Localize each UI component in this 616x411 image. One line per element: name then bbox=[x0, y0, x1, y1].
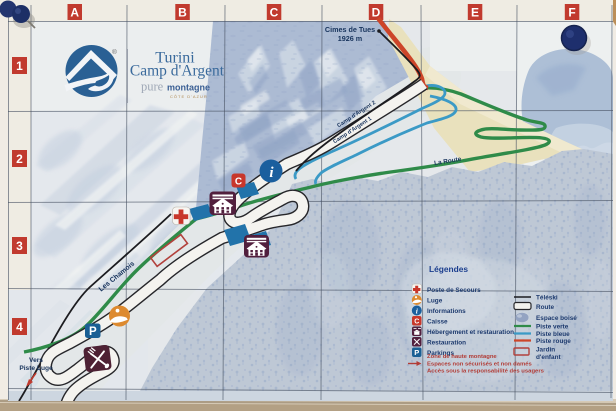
svg-text:pure: pure bbox=[141, 80, 164, 94]
svg-text:Luge: Luge bbox=[427, 298, 443, 305]
svg-text:d'enfant: d'enfant bbox=[536, 354, 561, 361]
svg-text:Camp d'Argent: Camp d'Argent bbox=[130, 63, 225, 80]
svg-text:montagne: montagne bbox=[167, 83, 210, 93]
svg-text:CÔTE D'AZUR: CÔTE D'AZUR bbox=[170, 94, 208, 99]
svg-text:E: E bbox=[471, 6, 479, 20]
svg-text:Cimes de Tues: Cimes de Tues bbox=[325, 25, 375, 34]
svg-text:4: 4 bbox=[16, 320, 23, 334]
svg-text:C: C bbox=[414, 319, 419, 326]
svg-text:Piste rouge: Piste rouge bbox=[536, 338, 571, 345]
svg-text:Piste bleue: Piste bleue bbox=[536, 331, 570, 338]
svg-text:2: 2 bbox=[16, 152, 23, 166]
svg-text:F: F bbox=[568, 6, 575, 20]
svg-text:P: P bbox=[414, 348, 419, 357]
svg-text:Accès sous la responsabilité d: Accès sous la responsabilité des usagers bbox=[427, 369, 545, 375]
svg-text:Route: Route bbox=[536, 304, 555, 311]
svg-text:Hébergement et restauration: Hébergement et restauration bbox=[427, 329, 514, 336]
svg-text:1926 m: 1926 m bbox=[338, 34, 362, 43]
svg-text:B: B bbox=[178, 6, 187, 20]
svg-text:Piste Luge: Piste Luge bbox=[19, 365, 53, 372]
svg-text:Téléski: Téléski bbox=[536, 295, 558, 302]
svg-text:Jardin: Jardin bbox=[536, 347, 555, 354]
svg-text:Informations: Informations bbox=[427, 308, 466, 315]
svg-text:Espaces non sécurisés et non d: Espaces non sécurisés et non damés bbox=[427, 362, 532, 368]
svg-text:C: C bbox=[235, 177, 242, 188]
svg-text:C: C bbox=[270, 6, 279, 20]
svg-text:1: 1 bbox=[16, 59, 23, 73]
svg-text:Vers: Vers bbox=[29, 357, 43, 364]
svg-text:P: P bbox=[89, 326, 97, 338]
svg-text:A: A bbox=[70, 6, 79, 20]
svg-text:Restauration: Restauration bbox=[427, 340, 466, 347]
svg-text:Poste de Secours: Poste de Secours bbox=[427, 287, 481, 294]
svg-text:Légendes: Légendes bbox=[429, 264, 468, 274]
svg-text:Caisse: Caisse bbox=[427, 319, 448, 326]
svg-text:Zone de haute montagne: Zone de haute montagne bbox=[427, 354, 497, 360]
svg-text:Espace boisé: Espace boisé bbox=[536, 315, 577, 322]
svg-text:®: ® bbox=[112, 48, 117, 56]
svg-text:3: 3 bbox=[16, 239, 23, 253]
svg-text:Piste verte: Piste verte bbox=[536, 324, 569, 331]
